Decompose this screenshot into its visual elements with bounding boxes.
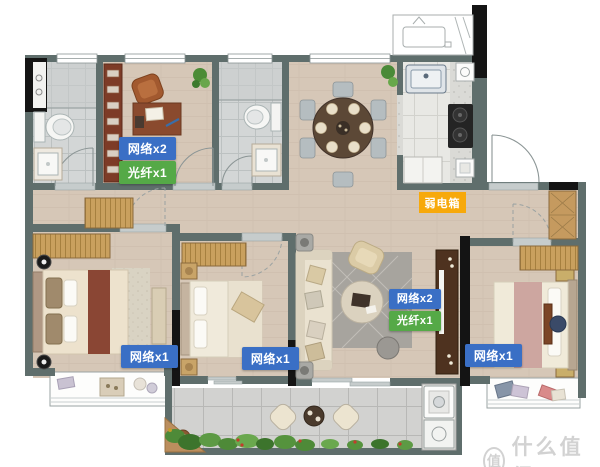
living-fiber-tag: 光纤x1: [389, 311, 441, 331]
study-network-tag: 网络x2: [119, 137, 176, 160]
floor-plan-drawing: [0, 0, 600, 467]
living-stool: [377, 337, 399, 359]
bedroom2-network-tag: 网络x1: [242, 347, 299, 370]
shaft-detail: [33, 62, 46, 108]
washing-machine: [422, 384, 456, 450]
master-bedroom-network-tag: 网络x1: [121, 345, 178, 368]
utility-area-outline: [393, 15, 473, 55]
entry-exterior: [487, 0, 600, 182]
weak-current-box-tag: 弱电箱: [419, 192, 466, 213]
bedroom3-network-tag: 网络x1: [465, 344, 522, 367]
bedroom3-wardrobe: [520, 246, 578, 270]
smzdm-watermark: 值 什么值得买: [483, 431, 600, 467]
smzdm-logo-icon: 值: [483, 447, 505, 467]
shoe-cabinet: [549, 191, 576, 239]
floor-plan: 网络x2 光纤x1 弱电箱 网络x2 光纤x1 网络x1 网络x1 网络x1 值…: [0, 0, 600, 467]
master-bench: [152, 288, 166, 344]
watermark-text: 什么值得买: [512, 431, 600, 467]
study-fiber-tag: 光纤x1: [119, 161, 176, 184]
master-wardrobe: [33, 234, 110, 258]
living-network-tag: 网络x2: [389, 289, 441, 309]
hallway-console: [85, 198, 133, 228]
